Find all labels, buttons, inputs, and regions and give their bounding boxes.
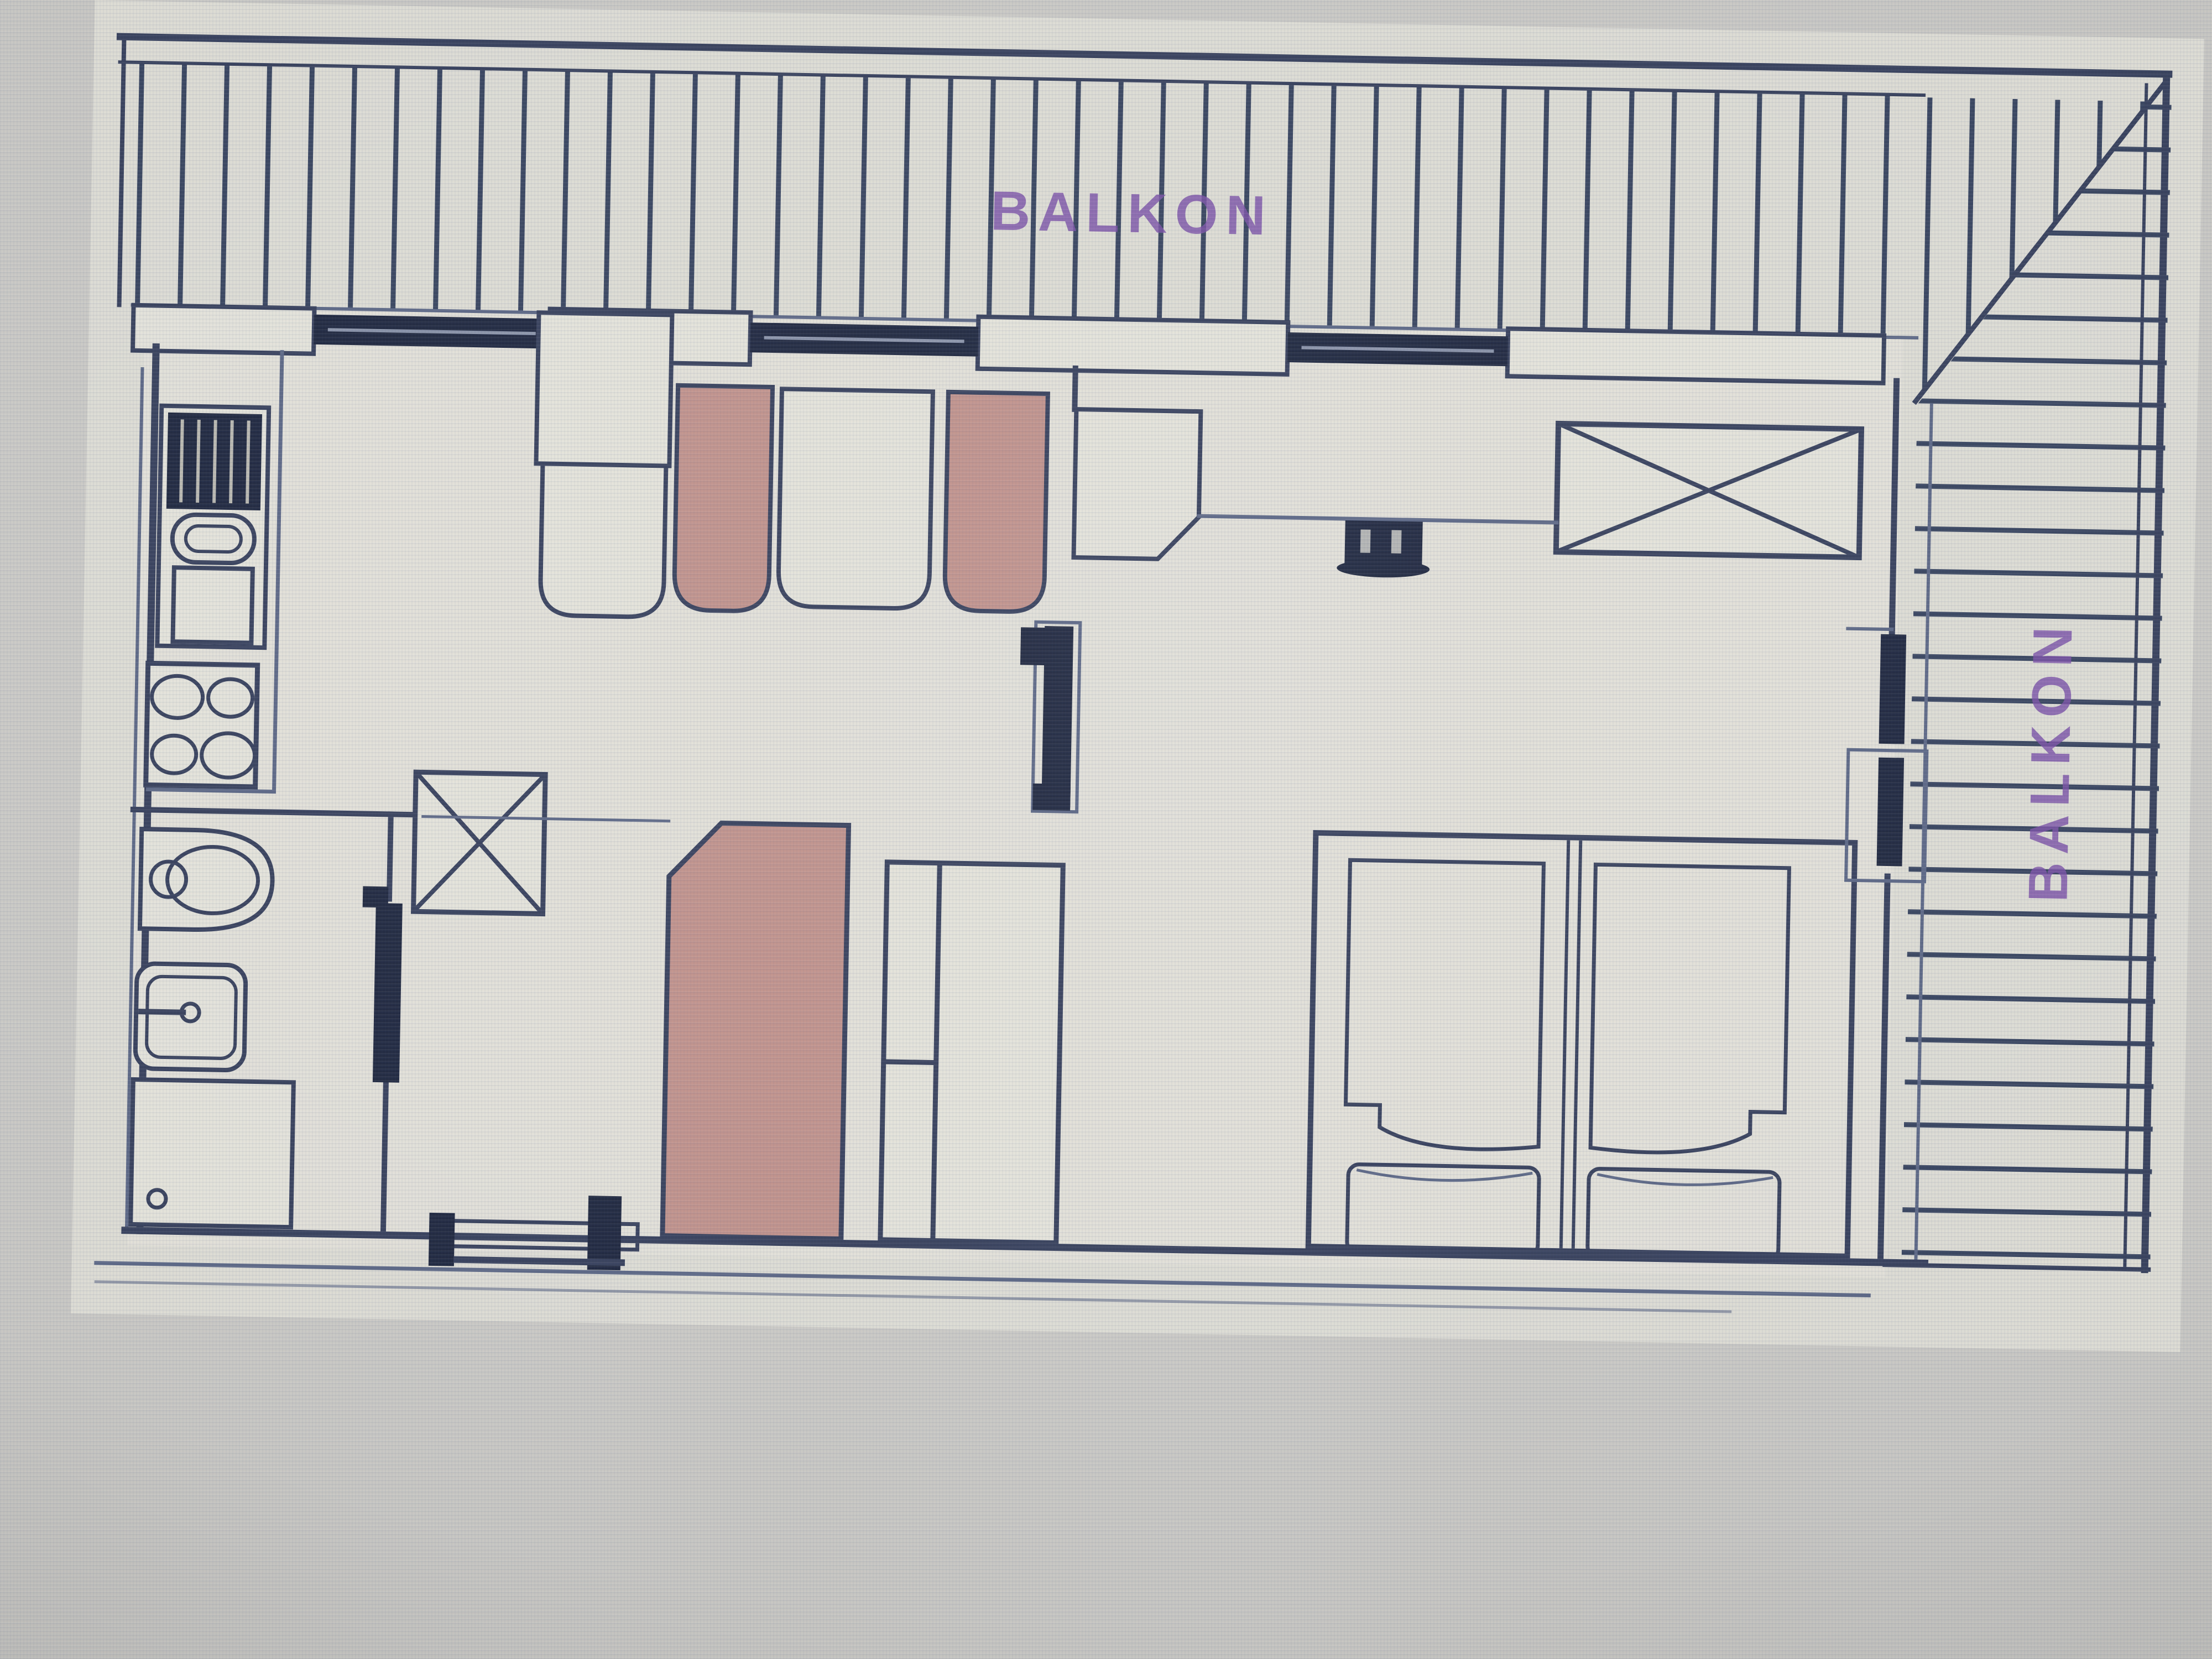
bathroom-door-leaf	[373, 903, 402, 1066]
balcony-top-label: BALKON	[990, 180, 1274, 247]
seat-backrest-box	[536, 312, 672, 466]
balcony-door-leaf	[1879, 634, 1907, 744]
wardrobe-large	[1556, 424, 1861, 557]
shower-tray	[131, 1079, 294, 1227]
vanity-sink-detail	[1360, 529, 1371, 552]
wall-pier	[978, 317, 1288, 374]
seat-cushion-pink	[674, 385, 773, 612]
balcony-right-label: BALKON	[2017, 619, 2084, 903]
closet-angled	[1074, 409, 1201, 560]
wall-pier	[133, 305, 314, 354]
vanity-sink-detail	[1391, 530, 1402, 554]
bathroom-door-hinge	[363, 886, 389, 908]
door-handle	[1020, 627, 1048, 665]
entrance-door-post	[429, 1213, 455, 1266]
wall-stub	[1074, 368, 1075, 409]
wardrobe-small	[414, 772, 546, 914]
entrance-door-threshold	[453, 1260, 625, 1263]
floor-plan-drawing: BALKON BALKON	[0, 0, 2212, 1659]
sink-basin-square	[173, 567, 252, 643]
floor-plan-photo: BALKON BALKON	[0, 0, 2212, 1659]
day-bed-pink	[662, 822, 849, 1239]
cabinet-shelf	[884, 1062, 936, 1063]
washbasin-faucet	[138, 1011, 186, 1013]
seat-panel-white	[778, 389, 933, 609]
cabinet-box	[880, 862, 1063, 1243]
seat-cushion-pink	[945, 392, 1048, 612]
bathroom-door-hinge	[373, 1061, 400, 1083]
cabinet	[880, 862, 1063, 1243]
doorway-edge	[1848, 629, 1892, 629]
wall-pier	[1507, 328, 1884, 383]
toilet	[140, 829, 273, 931]
balcony-door-leaf	[1877, 758, 1905, 867]
door-hinge	[1032, 784, 1071, 811]
vanity-sink	[1344, 520, 1422, 566]
